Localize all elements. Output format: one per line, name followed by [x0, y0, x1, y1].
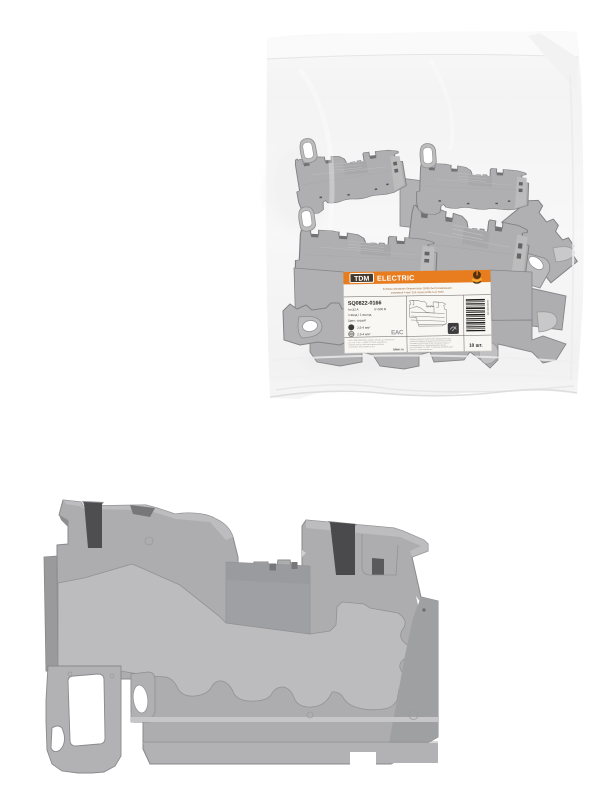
- svg-text:на упаковке. Срок службы 10 ле: на упаковке. Срок службы 10 лет.: [349, 346, 376, 348]
- svg-text:Хранить в сухом помещении.: Хранить в сухом помещении.: [410, 349, 434, 351]
- svg-text:2,5-4 мм²: 2,5-4 мм²: [357, 332, 370, 336]
- svg-text:EAC: EAC: [391, 329, 404, 336]
- svg-text:2,5-4 мм²: 2,5-4 мм²: [357, 326, 370, 330]
- svg-text:SQ0822-0166: SQ0822-0166: [348, 300, 382, 307]
- svg-text:4690612021966: 4690612021966: [486, 300, 488, 316]
- svg-text:зажимной 4 мм² 32А серая (JXB-: зажимной 4 мм² 32А серая (JXB-S-4) TDM: [391, 290, 444, 295]
- svg-text:1 ввод / 1 выход: 1 ввод / 1 выход: [348, 313, 372, 317]
- svg-text:TDM: TDM: [354, 276, 369, 283]
- svg-text:Цвет: серый: Цвет: серый: [348, 318, 366, 322]
- svg-text:U=500 В: U=500 В: [374, 307, 386, 311]
- svg-text:tdme.ru: tdme.ru: [393, 347, 404, 351]
- svg-text:In=32 A: In=32 A: [348, 308, 360, 312]
- svg-text:ELECTRIC: ELECTRIC: [377, 273, 415, 283]
- svg-text:10 шт.: 10 шт.: [469, 343, 483, 348]
